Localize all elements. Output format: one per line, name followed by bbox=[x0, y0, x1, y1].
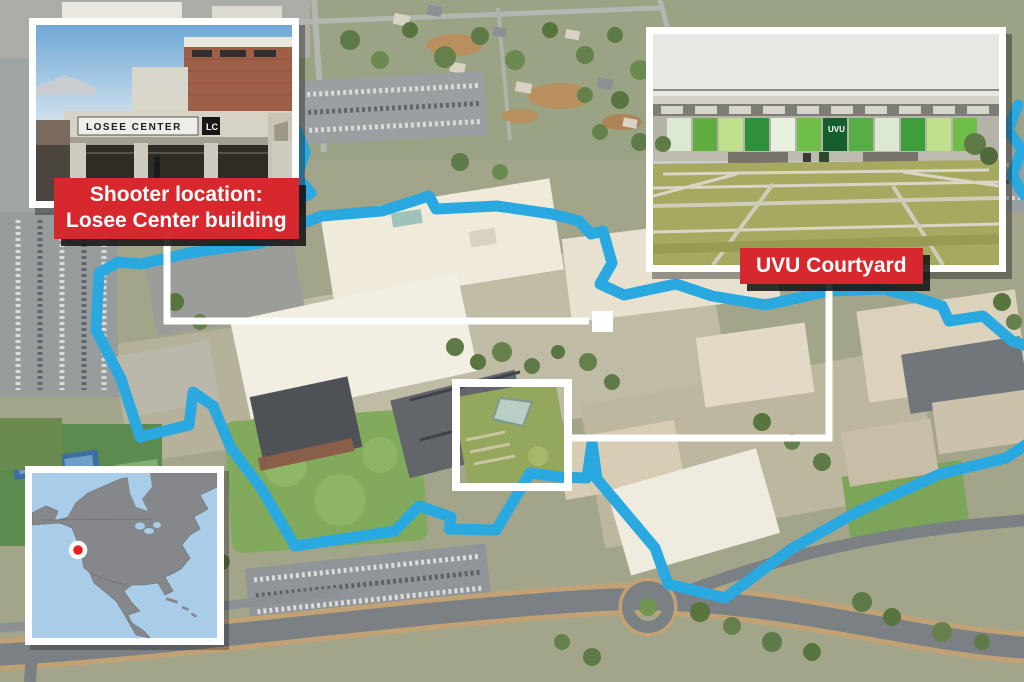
shooter-callout-line bbox=[167, 233, 589, 321]
losee-sign-text: LOSEE CENTER bbox=[86, 122, 182, 133]
brick-building bbox=[184, 37, 292, 113]
uvu-courtyard-label: UVU Courtyard bbox=[740, 248, 923, 284]
locator-red-dot-marker bbox=[71, 543, 85, 557]
uvu-courtyard-photo-inset: UVU bbox=[646, 27, 1006, 272]
shooter-location-label-line2: Losee Center building bbox=[66, 208, 287, 234]
locator-map-inset bbox=[25, 466, 224, 645]
annotated-aerial-map: LOSEE CENTER LC bbox=[0, 0, 1024, 682]
lc-badge-text: LC bbox=[206, 122, 218, 132]
uvu-courtyard-label-text: UVU Courtyard bbox=[756, 254, 907, 277]
courtyard-building: UVU bbox=[653, 90, 999, 163]
courtyard-area-marker bbox=[456, 383, 568, 487]
uvu-panel-text: UVU bbox=[828, 125, 845, 134]
shooter-location-label-line1: Shooter location: bbox=[66, 182, 287, 208]
shooter-location-marker bbox=[592, 311, 613, 332]
shooter-location-label: Shooter location: Losee Center building bbox=[54, 178, 299, 239]
person-silhouette bbox=[154, 156, 160, 162]
courtyard-callout-line bbox=[572, 282, 829, 438]
